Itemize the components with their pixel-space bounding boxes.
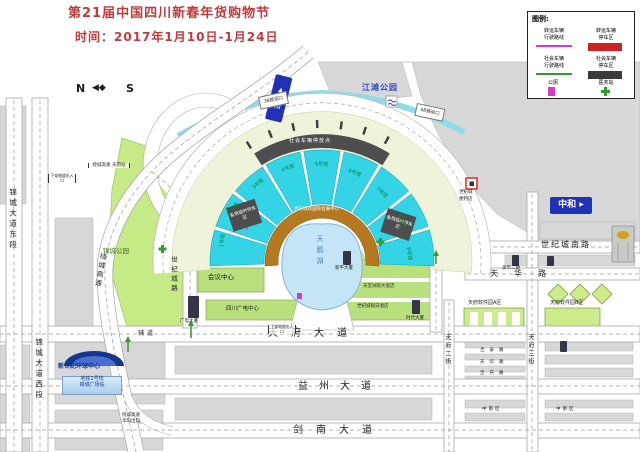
jiangtan-park-label: 江滩公园 [362, 83, 398, 92]
swan-lake-label: 天鹅湖 [316, 235, 324, 268]
hall-wedge [304, 150, 340, 205]
compass-south: S [126, 83, 134, 96]
hotel-tower-icon [612, 226, 634, 262]
legend-medical-label: 医务站 [586, 80, 626, 87]
legend-title: 图例: [532, 14, 549, 24]
radio-tv-center-label: 四川广电中心 [226, 306, 259, 312]
medical-cross-icon [601, 87, 610, 96]
legend: 图例: 转运车辆 行驶路线 转运车辆 停车区 社会车辆 行驶路线 社会车辆 停车… [527, 11, 635, 99]
metro-station-box: 地铁1号线 锦城广场站 [62, 376, 122, 395]
page-subtitle-dates: 时间：2017年1月10日-1月24日 [75, 31, 278, 45]
festival-traffic-map: 第21届中国四川新春年货购物节 时间：2017年1月10日-1月24日 N ◀◆… [0, 0, 640, 452]
holiday-inn-label: 世纪城假日酒店 [357, 304, 389, 309]
tree-icon [316, 120, 319, 128]
arrow-right-icon: ▶ [579, 202, 584, 209]
legend-transfer-route-label: 转运车辆 行驶路线 [532, 28, 576, 41]
metro-station-label: 锦城广场站 [63, 383, 121, 389]
venue-name-label: 世纪城新国际会展中心 [294, 207, 339, 212]
south-block-label-1: 中南区 [482, 407, 502, 412]
jiqing-rd-label: 吉庆路 [480, 371, 509, 376]
xinping-tower-label: 新平大厦 [335, 266, 353, 271]
magenta-route-icon [536, 45, 572, 47]
tunnel-entrance-label-1: 下穿隧道出入口 [48, 174, 76, 183]
service-road-label: 辅道 [138, 331, 156, 338]
tunnel-entrance-label-2: 下穿隧道出入口 [268, 325, 296, 334]
legend-social-route-label: 社会车辆 行驶路线 [532, 56, 576, 69]
meinian-label: 美年二期 [502, 266, 520, 271]
compass-north: N [76, 83, 85, 96]
page-title: 第21届中国四川新春年货购物节 [68, 7, 270, 22]
toilet-icon [548, 87, 555, 96]
dark-parking-box-icon [588, 71, 622, 79]
legend-social-parking-label: 社会车辆 停车区 [584, 56, 628, 69]
tianhua-rd-label: 天华路 [490, 269, 562, 278]
legend-toilet-label: 公厕 [536, 80, 570, 87]
green-route-icon [536, 73, 572, 75]
store-label-1: 世纪城 [459, 190, 473, 195]
social-parking-arc-label: 社会车辆停放点 [289, 139, 331, 145]
jincheng-ave-east-label: 锦城大道东段 [8, 188, 17, 251]
jincheng-park-label: 锦城公园 [103, 248, 129, 255]
store-label-2: 便利店 [459, 197, 473, 202]
software-park-a-label: 天府软件园A区 [468, 301, 501, 307]
legend-transfer-parking-label: 转运车辆 停车区 [584, 28, 628, 41]
tianfu-2nd-st-label: 天府二街 [443, 334, 450, 366]
zhonghe-sign-label: 中和 [558, 200, 576, 210]
intercontinental-label: 天堂洲际大饭店 [363, 284, 395, 289]
global-center-label: 新世纪环球中心 [58, 364, 100, 371]
shijicheng-rd-label: 世纪城路 [169, 256, 176, 294]
hall-label: 9号馆 [405, 247, 412, 261]
shijicheng-south-rd-label: 世纪城南路 [541, 240, 591, 249]
shidai-tower-label: 时代大厦 [406, 316, 424, 321]
software-park-b-label: 天府软件园B区 [550, 301, 583, 307]
toll-station-label: 绕城高速 天府站 [88, 163, 130, 168]
zhonghe-direction-sign-right: 中和 ▶ [550, 197, 592, 214]
hall-label: 5号馆 [315, 163, 328, 169]
store-icon-glyph [470, 182, 475, 187]
tianhua-rd-south-label: 天华路 [480, 360, 509, 365]
tianfu-3rd-st-label: 天府三街 [526, 334, 533, 366]
south-block-label-2: 中南区 [556, 407, 576, 412]
compass-icon: ◀◆ [92, 83, 106, 93]
radio-tower-label: 广电大厦 [180, 319, 198, 324]
jincheng-ave-west-label: 锦城大道西段 [34, 338, 43, 401]
huayang-exit-label: 绕城高速 华阳出口 [122, 413, 140, 425]
yizhou-avenue-label: 益州大道 [298, 381, 382, 393]
jitai-rd-label: 吉泰路 [480, 348, 509, 353]
red-parking-box-icon [588, 43, 622, 51]
conference-center-label: 会议中心 [208, 274, 234, 281]
jiannan-avenue-label: 剑南大道 [293, 425, 385, 437]
